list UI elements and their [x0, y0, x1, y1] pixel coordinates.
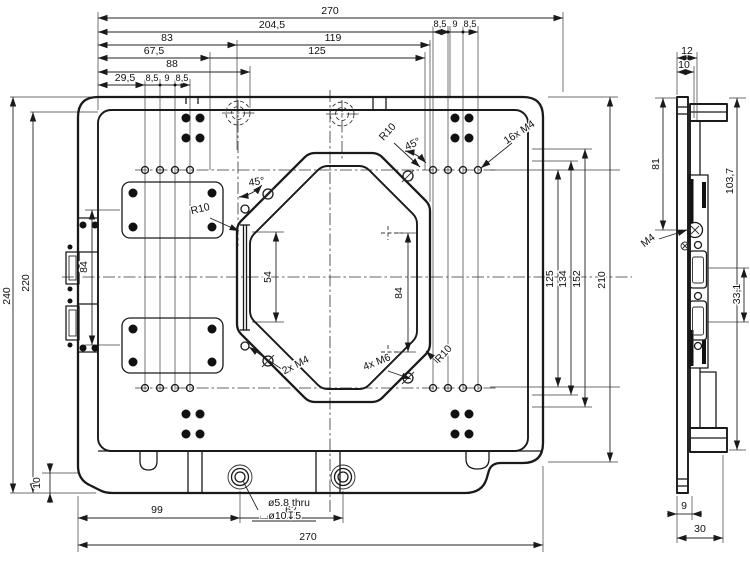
base-counterbore-holes	[228, 465, 355, 489]
dim-270-top: 270	[321, 5, 339, 17]
dim-270-bottom: 270	[299, 531, 317, 543]
dim-9: 9	[681, 500, 687, 512]
label-4x-m6: 4x M6	[361, 351, 392, 373]
dim-spacing-l2: 9	[164, 73, 169, 83]
label-r10-top: R10	[377, 121, 399, 143]
label-45-right: 45°	[403, 135, 422, 153]
hole-note-line2: ⌴ø10↧5	[260, 510, 301, 522]
label-45-left: 45°	[248, 175, 265, 189]
dim-88: 88	[166, 58, 178, 70]
label-r10-left: R10	[189, 201, 211, 217]
hole-patterns	[80, 101, 482, 489]
dim-12: 12	[681, 45, 693, 57]
dim-29-5: 29,5	[115, 72, 136, 84]
front-view: 270 204,5 8,5 9 8,5 83 119 67,5 125 88 2…	[1, 5, 632, 552]
m4-hole	[241, 342, 249, 350]
dim-84-inner: 84	[393, 287, 405, 299]
dim-125-top: 125	[308, 45, 326, 57]
label-r10-bottom: R10	[433, 343, 455, 365]
dim-84-left: 84	[78, 261, 90, 273]
dim-spacing-r1: 8,5	[434, 19, 447, 29]
dim-spacing-r3: 8,5	[464, 19, 477, 29]
dim-103-7: 103,7	[724, 168, 736, 194]
dim-210: 210	[596, 271, 608, 289]
dim-67-5: 67,5	[144, 45, 165, 57]
dim-30: 30	[694, 523, 706, 535]
hole-note-line1: ø5.8 thru	[268, 497, 310, 509]
dim-10-left: 10	[31, 477, 43, 489]
technical-drawing: 270 204,5 8,5 9 8,5 83 119 67,5 125 88 2…	[0, 0, 750, 564]
drawing-canvas: 270 204,5 8,5 9 8,5 83 119 67,5 125 88 2…	[0, 0, 750, 564]
dim-33-1: 33,1	[731, 284, 743, 305]
dim-152: 152	[571, 270, 583, 288]
dim-99: 99	[151, 504, 163, 516]
dim-spacing-l3: 8,5	[176, 73, 189, 83]
dim-240: 240	[1, 287, 13, 305]
dim-125-right: 125	[544, 270, 556, 288]
dim-204-5: 204,5	[259, 19, 285, 31]
dim-spacing-l1: 8,5	[146, 73, 159, 83]
label-m4-side: M4	[639, 231, 658, 250]
dim-134: 134	[557, 270, 569, 288]
hidden-holes	[226, 101, 354, 126]
side-view: 12 10 81 103,7 33,1 M4 9 30	[639, 45, 749, 543]
dim-81: 81	[650, 158, 662, 170]
dim-spacing-r2: 9	[452, 19, 457, 29]
dim-119: 119	[325, 32, 342, 44]
dim-54: 54	[262, 271, 274, 283]
dim-10-side: 10	[678, 59, 690, 71]
m4-hole	[241, 205, 249, 213]
dim-220: 220	[20, 274, 32, 292]
dim-83: 83	[161, 32, 173, 44]
side-connectors	[681, 175, 708, 368]
label-16x-m4: 16x M4	[502, 118, 538, 147]
